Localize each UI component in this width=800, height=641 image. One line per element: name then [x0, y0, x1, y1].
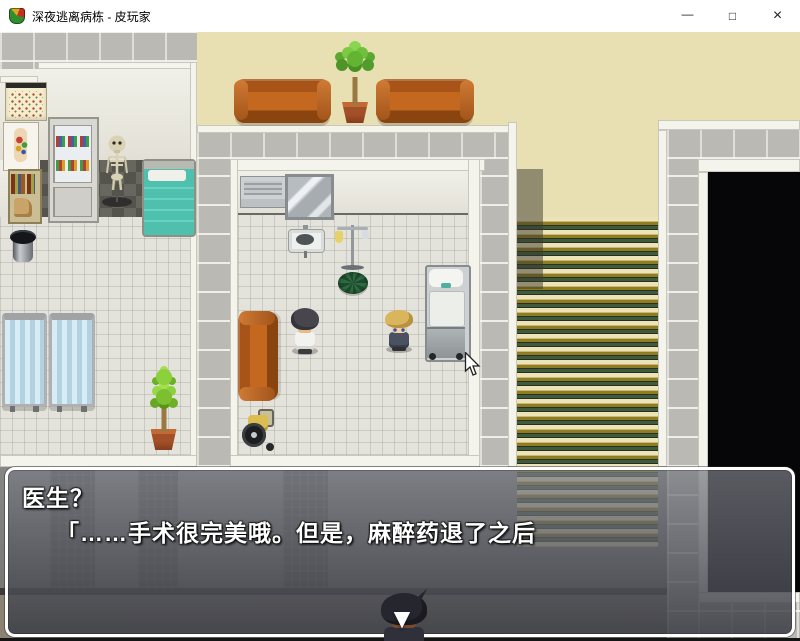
plant-trunk: [353, 77, 358, 105]
anatomy-poster: [3, 122, 39, 171]
ac-unit: [240, 176, 286, 208]
right-wall-border-v: [658, 130, 667, 467]
room1-bottom-wall: [0, 455, 197, 467]
mirror: [285, 174, 334, 220]
waiting-plant: [332, 39, 378, 123]
iv-bag: [335, 231, 343, 243]
patient-hair: [385, 310, 413, 328]
room2-couch: [238, 312, 278, 400]
maximize-icon: □: [729, 9, 736, 23]
stairwell-left-wall: [508, 122, 517, 467]
continue-indicator: ▼: [384, 603, 420, 635]
waiting-room-border: [197, 125, 517, 133]
window-controls: — □ ×: [665, 0, 800, 32]
window-title: 深夜逃离病栋 - 皮玩家: [32, 8, 151, 25]
skeleton-model: [100, 132, 134, 208]
doctor-body: [295, 332, 315, 350]
patient-body: [389, 332, 409, 348]
wall-beige-topright: [658, 32, 800, 120]
patient-eyes: [392, 328, 406, 332]
hallway-vertical: [197, 133, 230, 467]
wheelchair-front-wheel: [266, 443, 274, 451]
iv-stand: [333, 223, 372, 271]
trash-can: [8, 230, 40, 265]
dialogue-text: 「……手术很完美哦。但是，麻醉药退了之后: [56, 514, 536, 548]
maximize-button[interactable]: □: [710, 0, 755, 32]
bottles-shelf-top: [56, 136, 89, 147]
bed-blanket: [144, 183, 194, 231]
anatomy-organs: [13, 135, 29, 155]
medicine-cabinet: [48, 117, 99, 223]
iv-pole: [351, 225, 354, 267]
minimize-icon: —: [682, 7, 694, 21]
doctor-hair: [291, 308, 319, 330]
surgical-teal-mark: [441, 283, 451, 288]
bed-wheel: [456, 353, 463, 360]
privacy-screen: [2, 313, 47, 407]
bed-headboard: [144, 161, 194, 169]
waiting-couch: [235, 79, 330, 123]
close-icon: ×: [773, 7, 782, 25]
mouse-cursor-icon: [464, 352, 482, 378]
plant-pot: [342, 102, 368, 123]
bed-wheel: [429, 353, 436, 360]
sink-pipe: [304, 251, 307, 258]
iv-base: [341, 265, 364, 270]
patient-feet: [392, 347, 406, 351]
close-button[interactable]: ×: [755, 0, 800, 32]
sink: [288, 225, 323, 258]
right-wall-border-h: [658, 120, 800, 130]
wheelchair-hub: [251, 432, 257, 438]
bottles-shelf-bottom: [56, 160, 89, 171]
game-shield-icon: [9, 8, 25, 24]
staircase-shadow: [517, 169, 543, 289]
doctor-feet: [298, 349, 312, 354]
room2-left-wall: [230, 159, 238, 467]
cabinet-glass: [53, 125, 92, 183]
game-window: 深夜逃离病栋 - 皮玩家 — □ ×: [0, 0, 800, 641]
wheelchair: [238, 407, 278, 453]
books-row: [11, 174, 35, 194]
surgical-base: [427, 327, 465, 358]
wall-border: [38, 62, 197, 69]
hallway-band: [197, 133, 508, 159]
potted-plant: [145, 363, 182, 450]
doctor-sprite: [290, 308, 320, 355]
patient-sprite: [383, 310, 415, 353]
room1-right-wall: [190, 62, 197, 467]
surgical-bed: [425, 265, 471, 362]
shelf-object: [14, 198, 32, 217]
wall-calendar: [5, 82, 47, 121]
minimize-button[interactable]: —: [665, 0, 710, 32]
hallway-vertical: [480, 159, 508, 467]
window-titlebar[interactable]: 深夜逃离病栋 - 皮玩家 — □ ×: [0, 0, 800, 32]
waiting-couch: [377, 79, 473, 123]
bookshelf: [8, 169, 42, 224]
calendar-grid: [9, 91, 43, 118]
plant-leaves: [347, 51, 363, 67]
privacy-screen: [49, 313, 95, 407]
plant-leaves: [156, 389, 172, 405]
right-brick-band: [667, 130, 800, 159]
plant-pot: [151, 429, 177, 450]
bed-pillow: [148, 170, 186, 181]
cabinet-doors: [53, 187, 92, 217]
sink-bowl: [296, 234, 314, 245]
dialogue-speaker: 医生？: [22, 479, 94, 513]
room2-bottom-wall: [230, 455, 480, 467]
floor-plant-device: [338, 272, 368, 294]
trash-lid: [10, 230, 36, 244]
dark-room-frame-top: [698, 159, 800, 172]
hospital-bed: [142, 159, 196, 237]
plant-leaves: [156, 369, 172, 385]
ac-vents: [244, 181, 282, 195]
brick-wall-topleft: [0, 32, 197, 62]
iv-bag: [362, 230, 369, 239]
plant-stem: [161, 408, 166, 432]
room2-top-wall: [230, 159, 485, 171]
surgical-mattress: [429, 291, 465, 327]
